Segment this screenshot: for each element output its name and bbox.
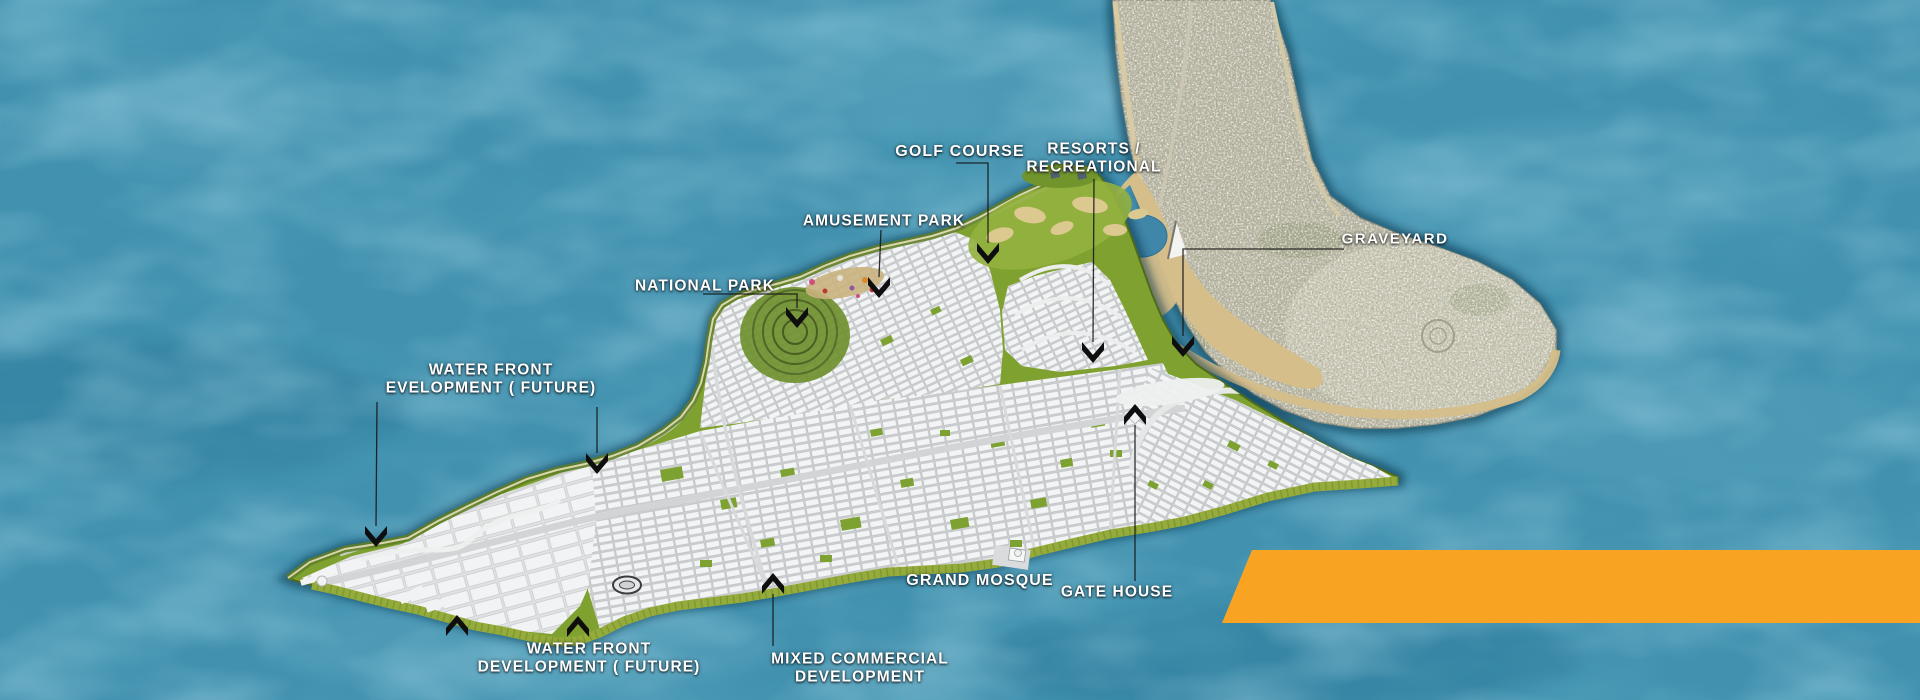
masterplan-map: GOLF COURSE RESORTS / RECREATIONAL AMUSE…: [0, 0, 1920, 700]
orange-banner-ribbon: [1222, 550, 1920, 623]
map-canvas: [0, 0, 1920, 700]
stadium-oval: [613, 577, 641, 594]
national-park-hill: [740, 287, 850, 383]
resorts-area: [1022, 164, 1098, 188]
